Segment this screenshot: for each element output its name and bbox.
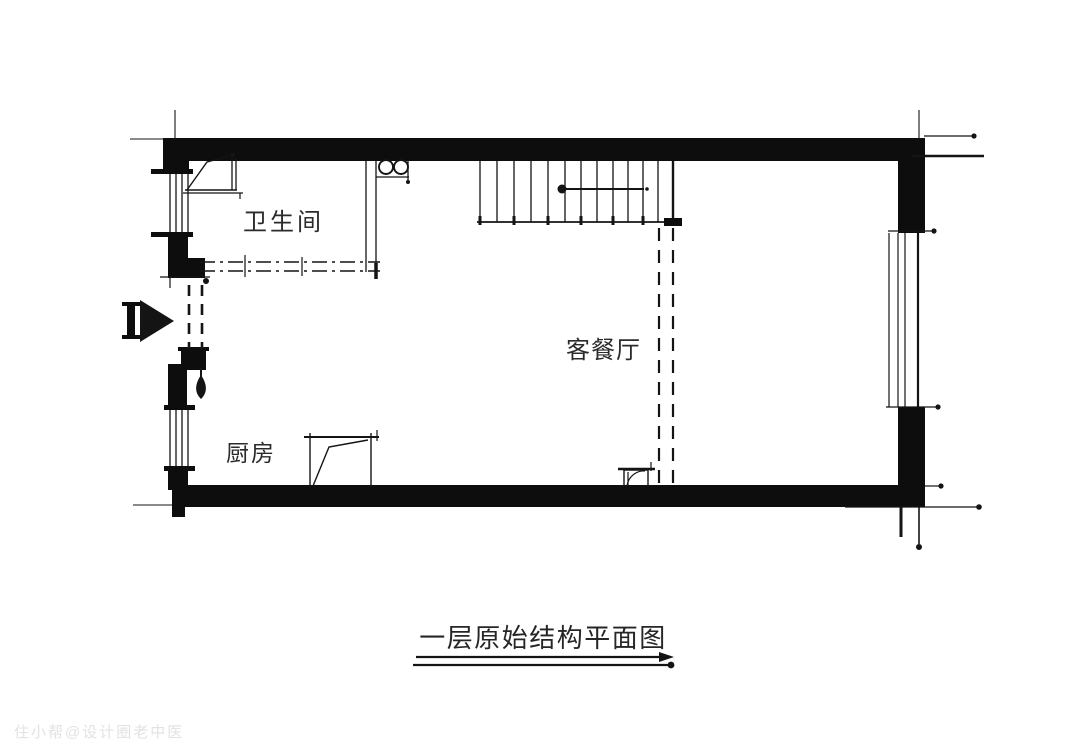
- extension-lines: [130, 110, 984, 550]
- kitchen-door-swing: [304, 430, 379, 487]
- room-label-living-dining: 客餐厅: [566, 330, 641, 365]
- stair-landing-dashed: [659, 228, 673, 484]
- right-wall-window: [886, 228, 941, 409]
- drawing-title: 一层原始结构平面图: [413, 618, 673, 655]
- stove-burners-icon: [376, 160, 410, 184]
- left-wall-window-upper: [151, 169, 193, 237]
- exterior-walls: [163, 138, 925, 517]
- entry-arrow-icon: [122, 300, 174, 342]
- stair-direction-arrow-icon: [558, 185, 649, 194]
- floor-drain-fixture: [618, 462, 655, 487]
- room-label-kitchen: 厨房: [226, 434, 276, 468]
- staircase: [477, 161, 682, 226]
- room-label-bathroom: 卫生间: [243, 202, 324, 237]
- floor-plan-page: 卫生间 客餐厅 厨房 一层原始结构平面图 住小帮@设计圈老中医: [0, 0, 1080, 756]
- watermark: 住小帮@设计圈老中医: [14, 721, 184, 742]
